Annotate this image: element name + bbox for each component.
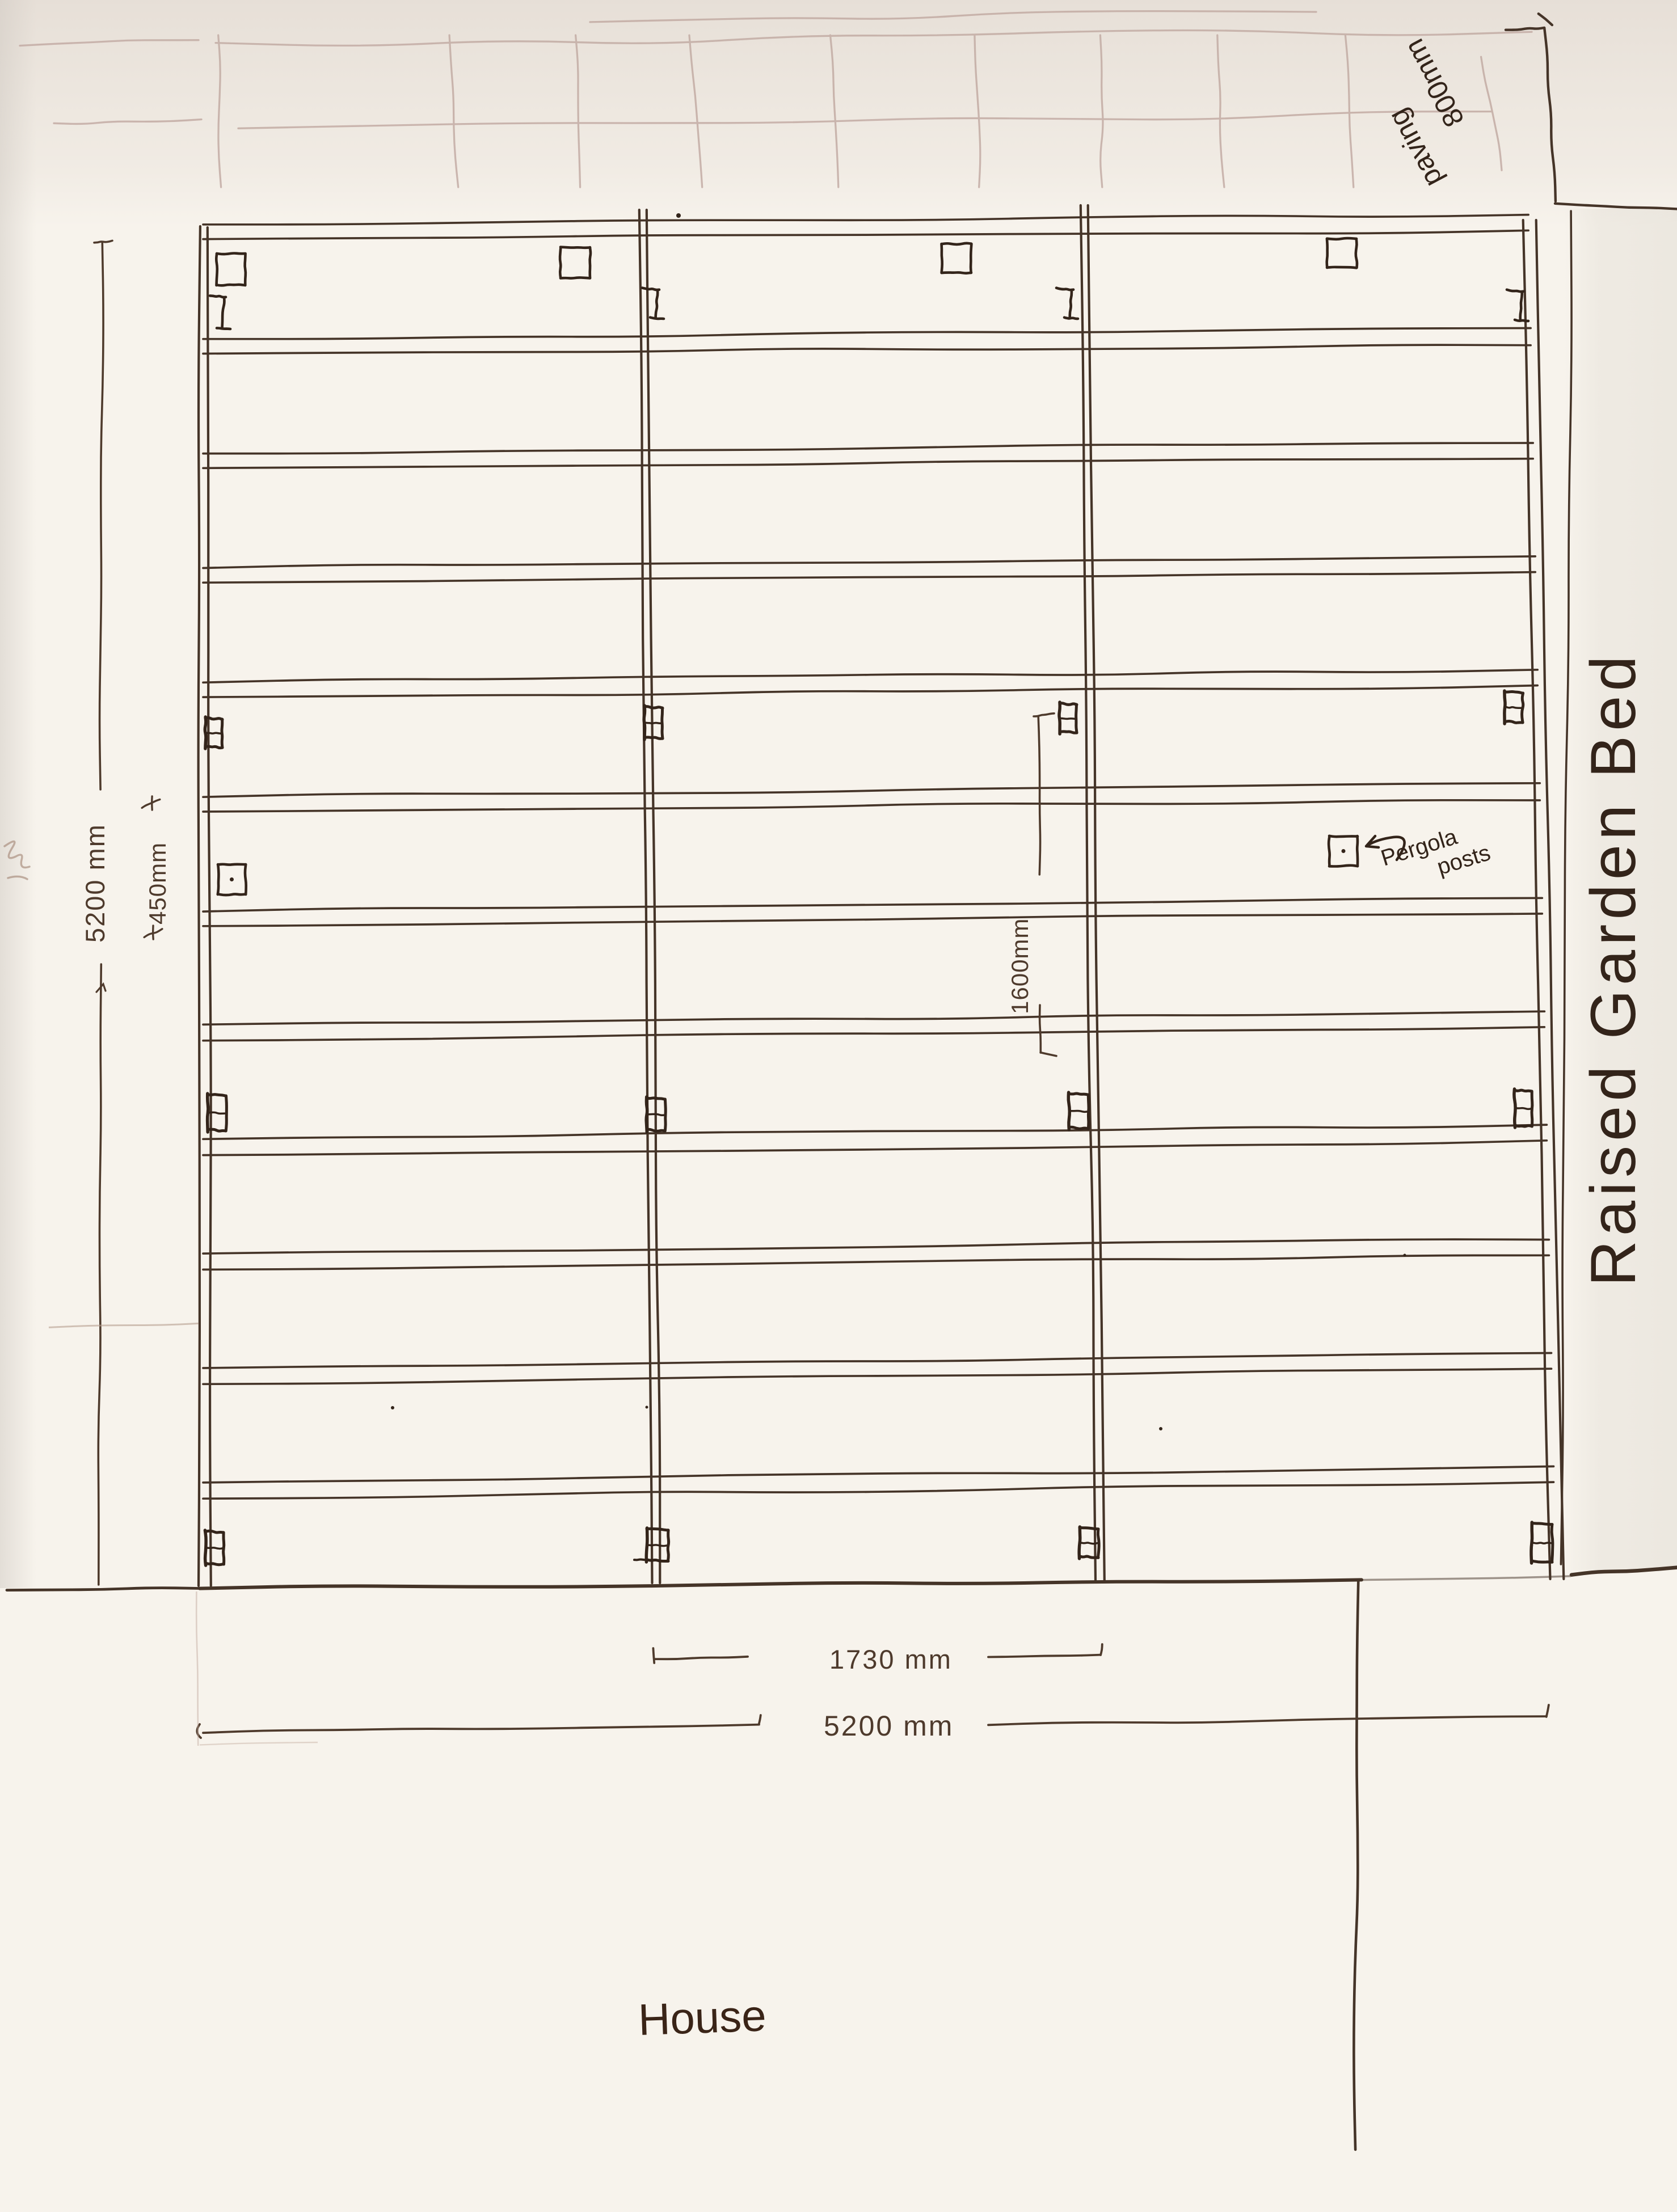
svg-text:5200 mm: 5200 mm (824, 1710, 954, 1742)
svg-text:1730 mm: 1730 mm (829, 1644, 953, 1674)
svg-text:1600mm: 1600mm (1006, 918, 1033, 1014)
svg-text:5200 mm: 5200 mm (80, 824, 110, 943)
svg-text:450mm: 450mm (144, 842, 171, 925)
svg-text:Raised Garden Bed: Raised Garden Bed (1578, 651, 1649, 1286)
svg-text:House: House (638, 1990, 767, 2045)
